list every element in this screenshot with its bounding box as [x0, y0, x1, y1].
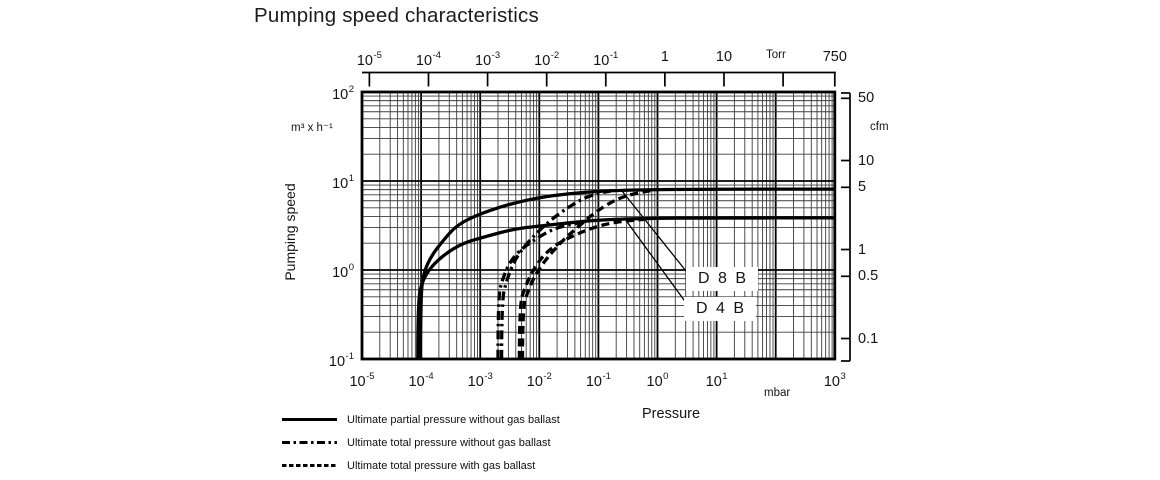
legend: Ultimate partial pressure without gas ba… [282, 408, 560, 477]
x-top-tick-label: 10-1 [583, 47, 629, 71]
dotted-line-sample-icon [282, 464, 337, 468]
y-right-tick-label: 0.5 [858, 266, 878, 286]
x-top-tick-label: 10-4 [405, 47, 451, 71]
x-bottom-tick-label: 101 [694, 368, 740, 392]
right-axis-unit-cfm: cfm [870, 121, 889, 133]
x-axis-title: Pressure [642, 406, 700, 422]
top-axis-unit-torr: Torr [766, 49, 786, 61]
x-top-tick-label: 10 [701, 47, 747, 67]
legend-label-dotted: Ultimate total pressure with gas ballast [347, 460, 535, 472]
x-bottom-tick-label: 10-3 [457, 368, 503, 392]
y-right-tick-label: 5 [858, 177, 866, 197]
curve-d8b-dashed [523, 190, 655, 359]
page: { "title": "Pumping speed characteristic… [0, 0, 1160, 480]
x-top-tick-label: 1 [642, 47, 688, 67]
y-left-tick-label: 100 [290, 259, 354, 283]
y-right-tick-label: 50 [858, 88, 874, 108]
x-bottom-tick-label: 100 [635, 368, 681, 392]
x-top-tick-label: 750 [812, 47, 858, 67]
x-bottom-tick-label: 10-1 [575, 368, 621, 392]
legend-row-dotted: Ultimate total pressure with gas ballast [282, 454, 560, 477]
curve-d4b-dashdot [498, 222, 585, 359]
chart-canvas [0, 0, 1160, 480]
legend-label-solid: Ultimate partial pressure without gas ba… [347, 414, 560, 426]
x-top-tick-label: 10-5 [346, 47, 392, 71]
curve-d4b-dashed [519, 219, 644, 359]
y-right-tick-label: 10 [858, 151, 874, 171]
dashdot-line-sample-icon [282, 441, 337, 444]
y-right-tick-label: 0.1 [858, 329, 878, 349]
y-right-tick-label: 1 [858, 240, 866, 260]
curve-label-d8b: D 8 B [686, 267, 758, 291]
y-left-tick-label: 10-1 [290, 348, 354, 372]
legend-row-solid: Ultimate partial pressure without gas ba… [282, 408, 560, 431]
curve-label-d4b: D 4 B [684, 297, 756, 321]
y-left-tick-label: 101 [290, 170, 354, 194]
x-bottom-tick-label: 103 [812, 368, 858, 392]
legend-row-dashdot: Ultimate total pressure without gas ball… [282, 431, 560, 454]
x-top-tick-label: 10-2 [524, 47, 570, 71]
y-axis-title: Pumping speed [282, 132, 300, 332]
x-bottom-tick-label: 10-4 [398, 368, 444, 392]
y-left-tick-label: 102 [290, 81, 354, 105]
x-bottom-tick-label: 10-2 [516, 368, 562, 392]
y-axis-unit-m3h: m³ x h⁻¹ [291, 120, 333, 134]
x-top-tick-label: 10-3 [465, 47, 511, 71]
legend-label-dashdot: Ultimate total pressure without gas ball… [347, 437, 551, 449]
solid-line-sample-icon [282, 418, 337, 421]
bottom-axis-unit-mbar: mbar [764, 387, 790, 399]
